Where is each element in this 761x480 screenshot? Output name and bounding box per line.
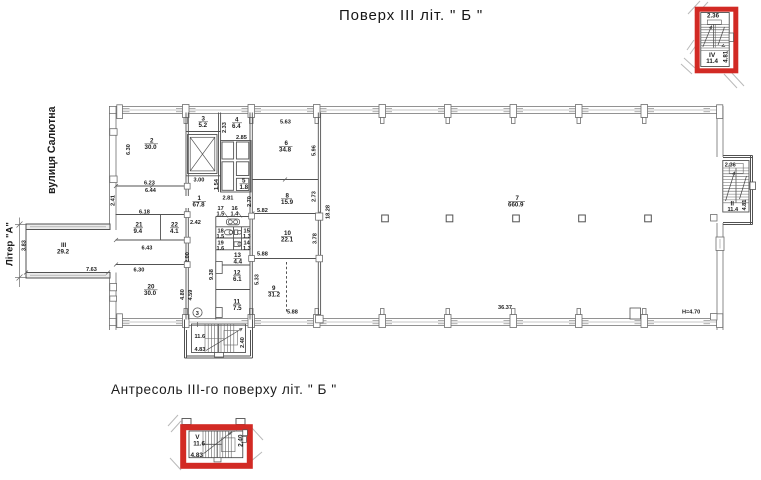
svg-text:11.4: 11.4 <box>706 58 718 65</box>
svg-text:1.3: 1.3 <box>243 234 251 240</box>
svg-text:34.8: 34.8 <box>279 147 292 154</box>
svg-text:6.4: 6.4 <box>232 123 241 130</box>
svg-text:11.6: 11.6 <box>193 440 205 447</box>
svg-text:2.41: 2.41 <box>111 195 117 206</box>
svg-text:22.1: 22.1 <box>281 237 294 244</box>
svg-text:5.2: 5.2 <box>199 122 208 129</box>
svg-text:1.54: 1.54 <box>214 178 220 190</box>
svg-text:5.88: 5.88 <box>287 310 298 316</box>
svg-text:36.37: 36.37 <box>498 305 512 311</box>
svg-text:15.9: 15.9 <box>281 199 294 206</box>
svg-text:29.2: 29.2 <box>57 249 70 256</box>
svg-text:3.78: 3.78 <box>313 233 319 244</box>
svg-text:1.6: 1.6 <box>217 246 225 252</box>
svg-text:6.1: 6.1 <box>233 276 242 283</box>
svg-text:6.30: 6.30 <box>126 144 132 155</box>
svg-text:H=4.70: H=4.70 <box>682 310 700 316</box>
svg-text:6.43: 6.43 <box>142 246 153 252</box>
svg-text:3.83: 3.83 <box>22 240 28 251</box>
svg-text:2.81: 2.81 <box>223 196 234 202</box>
svg-text:Поверх III літ. " Б ": Поверх III літ. " Б " <box>339 7 483 24</box>
svg-text:2.70: 2.70 <box>247 196 253 207</box>
svg-text:4.80: 4.80 <box>180 289 186 300</box>
svg-text:6.30: 6.30 <box>134 268 145 274</box>
svg-text:2.42: 2.42 <box>190 220 201 226</box>
svg-text:вулиця Салютна: вулиця Салютна <box>46 106 58 194</box>
svg-text:5.88: 5.88 <box>257 252 268 258</box>
svg-text:2.73: 2.73 <box>312 191 318 202</box>
svg-text:11.6: 11.6 <box>195 334 206 340</box>
svg-text:30.0: 30.0 <box>144 290 157 297</box>
svg-text:31.2: 31.2 <box>268 292 281 299</box>
svg-text:Антресоль III-го поверху літ: Антресоль III-го поверху літ. " Б " <box>111 382 337 397</box>
svg-text:4.81: 4.81 <box>742 200 748 211</box>
svg-text:1.3: 1.3 <box>243 246 251 252</box>
svg-text:5.63: 5.63 <box>280 120 291 126</box>
svg-text:7.5: 7.5 <box>233 305 242 312</box>
svg-text:4.81: 4.81 <box>722 50 729 63</box>
svg-text:6.23: 6.23 <box>144 181 155 187</box>
svg-text:1.8: 1.8 <box>240 184 249 191</box>
svg-text:Літер "А": Літер "А" <box>5 222 16 266</box>
svg-text:2.40: 2.40 <box>240 337 246 348</box>
svg-text:1.5: 1.5 <box>217 234 225 240</box>
svg-text:6.44: 6.44 <box>145 188 157 194</box>
svg-text:3.00: 3.00 <box>194 178 205 184</box>
svg-text:2.36: 2.36 <box>707 13 720 20</box>
svg-text:9.4: 9.4 <box>134 228 143 235</box>
svg-text:2.33: 2.33 <box>222 122 228 133</box>
svg-text:5.33: 5.33 <box>255 274 261 285</box>
svg-text:4.59: 4.59 <box>188 290 194 301</box>
svg-text:6.18: 6.18 <box>139 210 150 216</box>
svg-text:660.9: 660.9 <box>508 202 524 209</box>
svg-text:11.4: 11.4 <box>728 207 739 213</box>
svg-text:5.96: 5.96 <box>312 145 318 156</box>
svg-text:7.63: 7.63 <box>86 267 97 273</box>
svg-text:5.82: 5.82 <box>257 208 268 214</box>
svg-text:9.38: 9.38 <box>209 269 215 280</box>
svg-text:4.4: 4.4 <box>234 259 243 266</box>
svg-text:1.5: 1.5 <box>217 212 225 218</box>
svg-text:30.0: 30.0 <box>145 144 158 151</box>
svg-text:3: 3 <box>196 311 199 317</box>
svg-text:4.83: 4.83 <box>191 452 204 459</box>
svg-text:4.1: 4.1 <box>170 228 179 235</box>
svg-text:67.8: 67.8 <box>193 202 206 209</box>
svg-text:4.83: 4.83 <box>195 347 206 353</box>
svg-text:18.28: 18.28 <box>326 205 332 219</box>
